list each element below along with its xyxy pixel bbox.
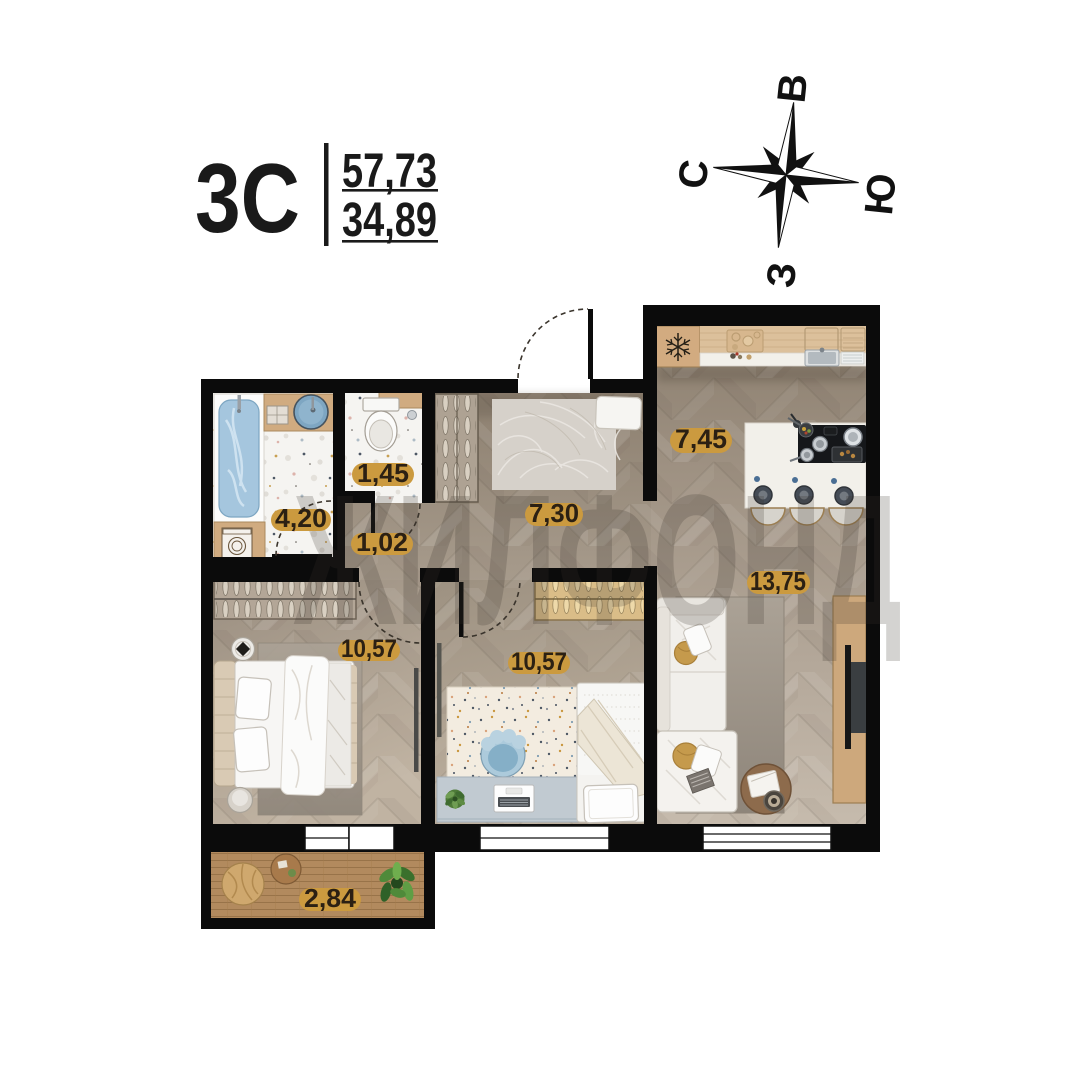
svg-text:7,30: 7,30: [529, 498, 579, 528]
svg-text:3C: 3C: [195, 143, 300, 253]
svg-text:ЖИЛФОНД: ЖИЛФОНД: [293, 457, 902, 664]
svg-text:З: З: [759, 260, 805, 290]
svg-text:34,89: 34,89: [342, 194, 437, 247]
svg-text:10,57: 10,57: [341, 635, 397, 663]
svg-text:2,84: 2,84: [304, 883, 357, 913]
svg-text:7,45: 7,45: [675, 424, 727, 454]
svg-text:1,02: 1,02: [356, 527, 408, 557]
svg-text:1,45: 1,45: [357, 458, 409, 488]
svg-text:4,20: 4,20: [275, 503, 327, 533]
svg-text:В: В: [770, 71, 817, 104]
svg-text:С: С: [671, 157, 718, 190]
svg-text:13,75: 13,75: [750, 566, 806, 596]
svg-text:Ю: Ю: [857, 171, 905, 217]
svg-text:10,57: 10,57: [511, 648, 567, 676]
